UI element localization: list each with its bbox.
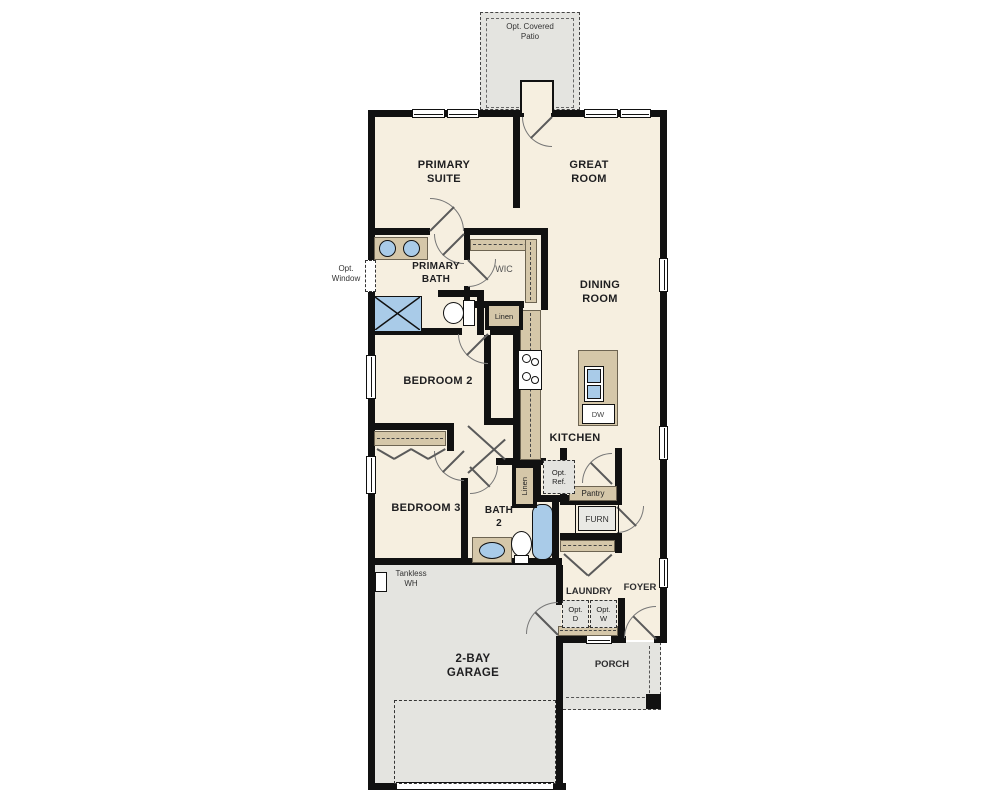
window [366,456,376,494]
window [584,109,618,118]
toilet-tank [463,300,475,326]
burner [522,372,531,381]
toilet-bowl [443,302,464,324]
wall-segment [513,113,520,208]
window [659,426,668,460]
opt-washer-label: Opt. W [596,605,611,623]
optional-dryer: Opt. D [562,600,589,628]
wic-shelf [525,239,537,303]
opt-window-label: Opt. Window [329,264,363,283]
wall-segment [560,533,618,540]
foyer-label: FOYER [618,582,662,593]
window [586,635,612,644]
kitchen-label: KITCHEN [541,432,609,446]
wall-segment [368,110,375,567]
bath2-sink [479,542,505,559]
toilet-base [514,555,529,564]
window [620,109,651,118]
pantry-label: Pantry [571,489,615,499]
wall-segment [556,565,563,605]
patio-door-landing [520,80,554,113]
shelf-rod-dash [377,438,443,439]
porch-label: PORCH [586,659,638,670]
wall-segment [461,478,468,562]
porch-post [646,694,661,709]
burner [531,358,539,366]
primary-suite-label: PRIMARY SUITE [402,159,486,187]
garage-apron-dash [394,700,556,784]
bedroom-2-label: BEDROOM 2 [398,375,478,389]
opt-dryer-label: Opt. D [568,605,583,623]
primary-bath-label: PRIMARY BATH [406,261,466,286]
porch-inner-dash [566,646,650,698]
coat-closet-shelf [560,540,615,552]
floor-plan: Linen Linen Opt. Ref. FURN Opt. D Opt. W… [0,0,1000,800]
wall-segment [556,637,563,783]
great-room-label: GREAT ROOM [558,159,620,187]
window [447,109,479,118]
island-sink-basin [587,369,601,383]
shelf-rod-dash [473,244,533,245]
linen-closet-upper: Linen [485,302,523,330]
linen-upper-label: Linen [495,312,513,321]
wall-segment [477,290,484,335]
furnace: FURN [578,506,616,531]
optional-window [365,260,376,292]
island-sink-basin [587,385,601,399]
opt-ref-label: Opt. Ref. [548,468,570,486]
bedroom-3-label: BEDROOM 3 [386,502,466,516]
wall-segment [368,423,454,430]
laundry-label: LAUNDRY [558,586,620,597]
shower-x [375,297,420,330]
wall-segment [447,423,454,451]
wall-segment [552,500,559,560]
window [412,109,445,118]
tankless-label: Tankless WH [390,569,432,588]
wall-segment [484,418,518,425]
optional-washer: Opt. W [590,600,617,628]
vanity-sink [379,240,396,257]
shelf-rod-dash [530,242,531,300]
wall-segment [368,110,524,117]
vanity-sink [403,240,420,257]
shower [374,296,422,332]
dishwasher-label: DW [585,410,611,419]
furnace-label: FURN [585,514,609,524]
garage-label: 2-BAY GARAGE [428,652,518,681]
patio-label: Opt. Covered Patio [502,22,558,41]
window [366,355,376,399]
shelf-rod-dash [563,545,612,546]
wic-label: WIC [490,264,518,275]
counter-dash [560,630,616,631]
bath-2-label: BATH 2 [482,505,516,530]
wall-segment [368,560,375,790]
wall-segment [368,228,430,235]
wall-segment [541,228,548,310]
tankless-water-heater [375,572,387,592]
linen-lower-label: Linen [520,477,529,495]
window [659,258,668,292]
linen-closet-lower: Linen [512,464,537,508]
toilet-bowl [511,531,532,557]
wall-segment [464,228,548,235]
burner [522,354,531,363]
dining-room-label: DINING ROOM [569,279,631,307]
burner [531,376,539,384]
bathtub [532,504,553,560]
